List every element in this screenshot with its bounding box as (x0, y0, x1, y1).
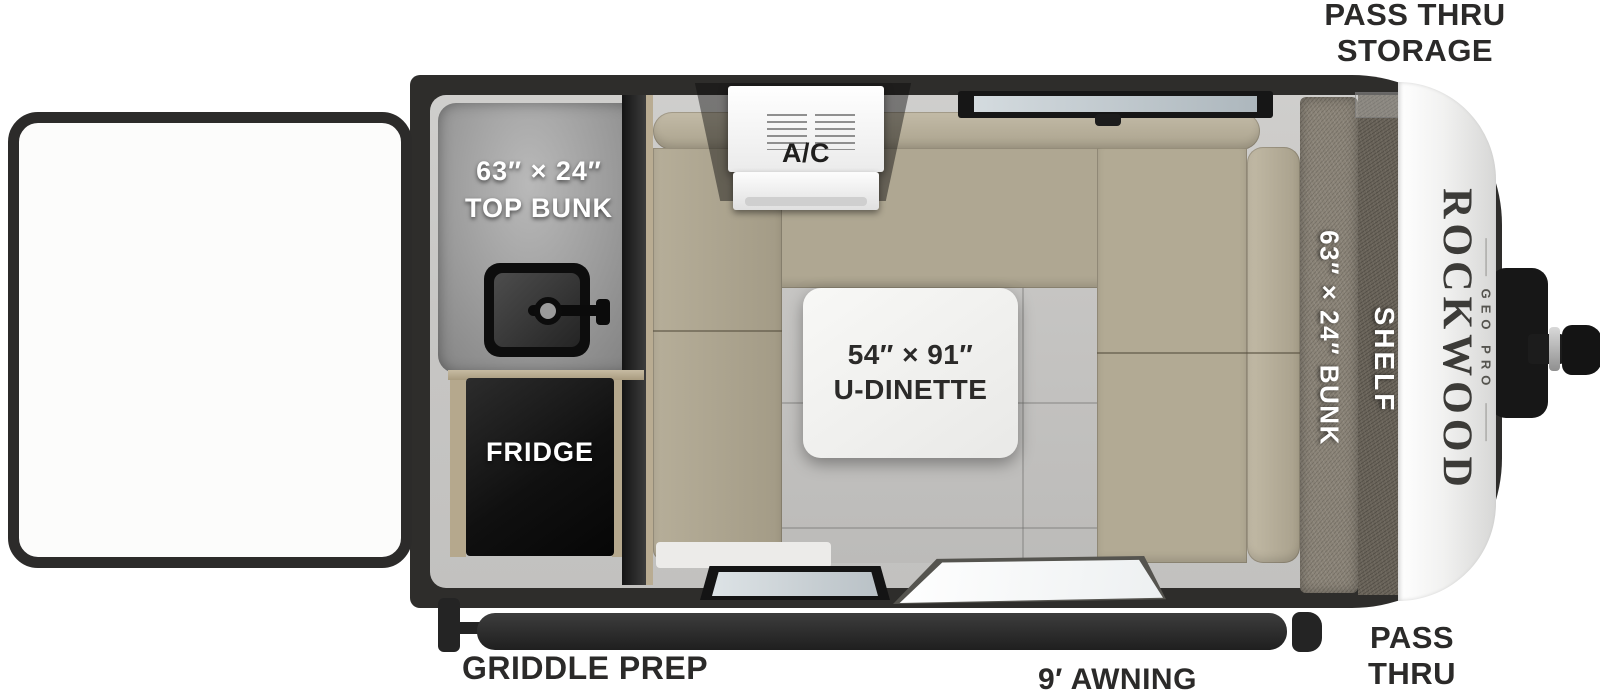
brand-sub-label: GEO PRO (1479, 188, 1494, 492)
bottom-window-glass (712, 572, 878, 596)
tile-joint (1022, 288, 1024, 563)
brand-name-label: ROCKWOOD (1434, 188, 1478, 492)
pass-thru-storage-label-bottom: PASS THRU STORAGE (1322, 620, 1502, 693)
fridge-label: FRIDGE (466, 437, 614, 468)
side-bunk-label-text: 63″ × 24″ BUNK (1314, 230, 1345, 446)
awning-bracket-left (438, 598, 460, 652)
top-window-glass (974, 96, 1257, 112)
ac-panel-strip (745, 197, 867, 206)
cushion-seam (653, 330, 782, 332)
top-bunk-label: 63″ × 24″ TOP BUNK (438, 153, 640, 227)
dinette-seat-right (1097, 148, 1247, 563)
pass-thru-storage-top-line2: STORAGE (1295, 33, 1535, 69)
bottom-window-sill (656, 542, 831, 568)
outside-kitchen-box (8, 112, 412, 568)
u-dinette-text: U-DINETTE (803, 372, 1018, 407)
cushion-seam (1247, 352, 1300, 354)
tile-joint (782, 527, 1097, 529)
awning-label: 9′ AWNING (1038, 663, 1197, 693)
awning-bracket-right (1292, 612, 1322, 652)
u-dinette-dimensions: 54″ × 91″ (803, 337, 1018, 372)
griddle-prep-label: GRIDDLE PREP (462, 650, 708, 687)
ac-label: A/C (728, 138, 884, 169)
fridge-cabinet-left (450, 375, 466, 557)
cushion-seam (1097, 352, 1247, 354)
hitch-coupler-knob (1562, 325, 1600, 375)
top-bunk-text: TOP BUNK (438, 190, 640, 227)
awning-roller-bar (477, 613, 1287, 650)
hitch-jack-ring (1549, 327, 1560, 371)
floorplan-canvas: PASS THRU STORAGE 63″ × 24″ TOP BUNK FRI… (0, 0, 1600, 693)
pass-thru-storage-bottom-line1: PASS THRU (1322, 620, 1502, 692)
faucet-base (534, 297, 562, 325)
shelf-label-text: SHELF (1368, 307, 1400, 414)
top-bunk-dimensions: 63″ × 24″ (438, 153, 640, 190)
top-window-latch (1095, 114, 1121, 126)
u-dinette-label: 54″ × 91″ U-DINETTE (803, 337, 1018, 407)
pass-thru-storage-top-line1: PASS THRU (1295, 0, 1535, 33)
faucet-spout (596, 299, 610, 325)
dinette-back-bolster-right (1247, 147, 1300, 563)
divider-wall-trim (646, 95, 653, 585)
pass-thru-storage-label-top: PASS THRU STORAGE (1295, 0, 1535, 69)
